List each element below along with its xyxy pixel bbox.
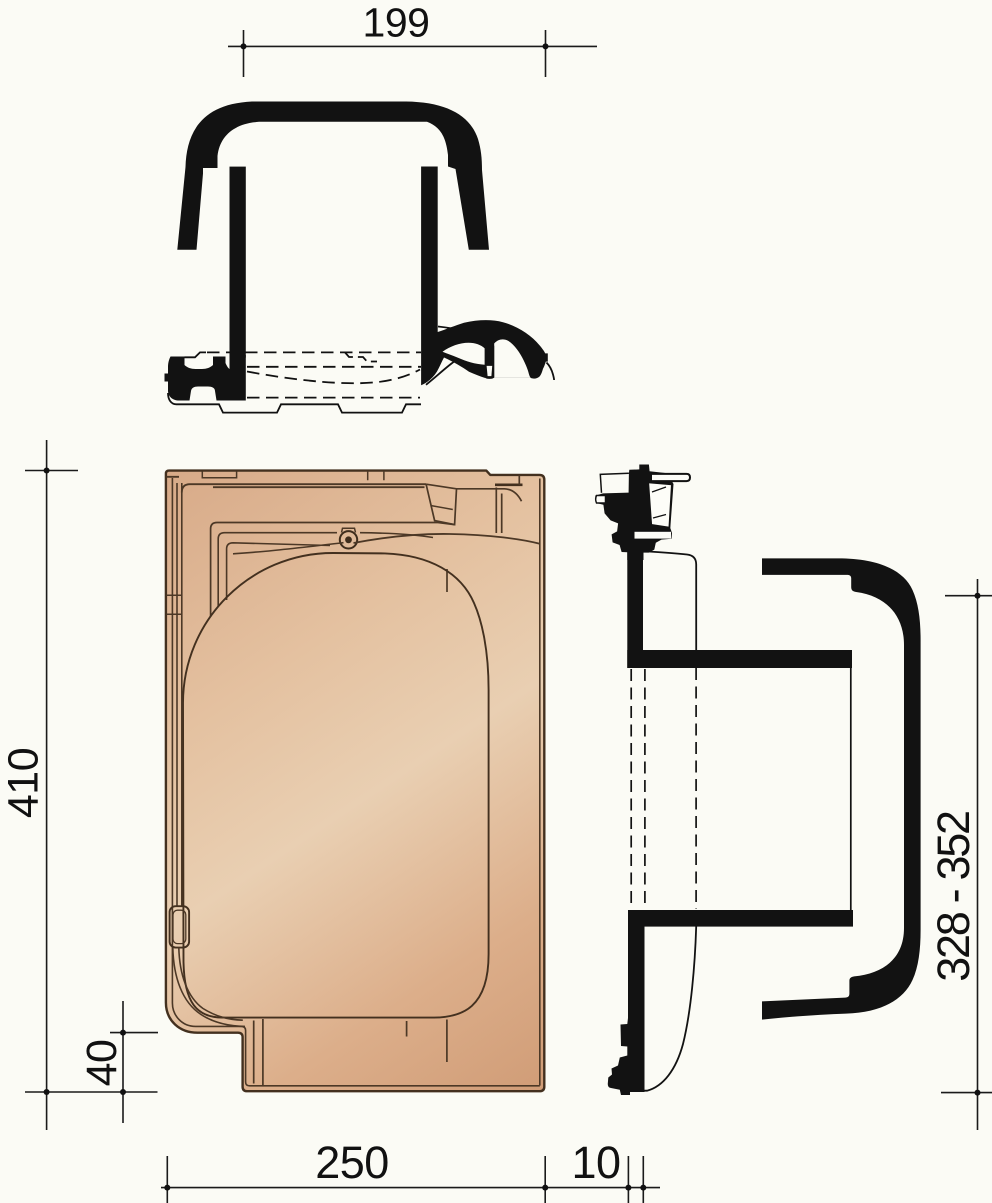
svg-text:199: 199 [363, 0, 430, 46]
svg-text:410: 410 [0, 748, 48, 818]
svg-text:40: 40 [78, 1040, 126, 1087]
svg-text:250: 250 [315, 1137, 389, 1188]
svg-text:10: 10 [571, 1137, 620, 1188]
svg-text:328 - 352: 328 - 352 [928, 812, 979, 982]
